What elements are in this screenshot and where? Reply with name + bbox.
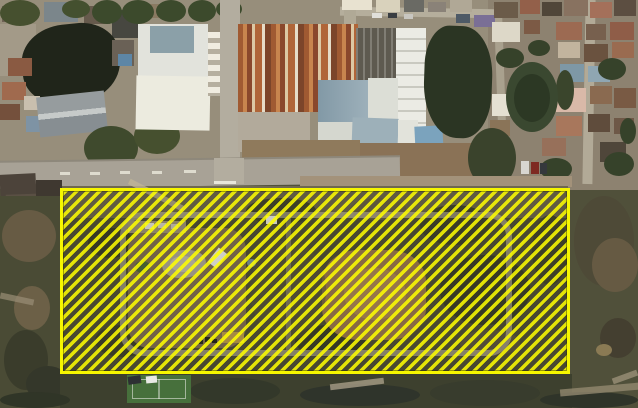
house-roof: [614, 88, 636, 108]
tree: [604, 152, 634, 176]
building-roof: [376, 0, 400, 12]
building-roof: [428, 2, 446, 12]
house-roof: [590, 86, 612, 104]
scrub-patch: [592, 238, 638, 292]
car: [372, 13, 382, 18]
tree: [122, 0, 154, 24]
house-roof: [520, 0, 540, 14]
house-roof: [564, 0, 588, 16]
house-roof: [588, 114, 610, 132]
scrub-patch: [540, 392, 638, 408]
road-marking: [152, 171, 162, 174]
road-marking: [120, 171, 130, 174]
tree: [156, 0, 186, 22]
house-roof: [542, 2, 562, 16]
building-roof: [404, 0, 424, 12]
road-marking: [60, 172, 70, 175]
pond: [422, 25, 494, 139]
white-warehouse: [136, 75, 211, 130]
house-roof: [586, 24, 606, 40]
house-roof: [494, 2, 518, 18]
house-roof: [524, 20, 540, 34]
tree: [620, 118, 636, 144]
tree: [598, 58, 626, 80]
house-roof: [610, 22, 634, 40]
blue-shed: [118, 54, 132, 66]
tree: [556, 70, 574, 110]
road-marking: [90, 172, 100, 175]
scrub-patch: [190, 378, 280, 404]
house-roof: [590, 2, 612, 18]
house-roof: [612, 42, 634, 58]
road-marking: [184, 170, 196, 173]
parked-car: [540, 163, 547, 174]
tree: [62, 0, 90, 18]
road-marking: [214, 181, 236, 184]
tree: [528, 40, 550, 56]
scrub-patch: [300, 384, 420, 406]
house-roof: [556, 22, 582, 40]
car: [404, 14, 413, 19]
house-roof: [614, 0, 636, 16]
satellite-map-view[interactable]: [0, 0, 638, 408]
parked-car: [521, 161, 529, 174]
house-roof: [542, 138, 566, 156]
house-roof: [2, 82, 26, 100]
parked-car: [531, 162, 539, 174]
house-roof: [0, 104, 20, 120]
vertical-road: [220, 0, 240, 170]
house-roof: [556, 116, 582, 136]
field-midline: [158, 379, 160, 399]
house-roof: [8, 58, 32, 76]
house-roof: [492, 22, 520, 42]
tree: [92, 0, 122, 24]
scrub-patch: [596, 344, 612, 356]
building-roof: [456, 14, 470, 23]
white-roof: [368, 78, 398, 122]
highlighted-region-overlay[interactable]: [60, 188, 570, 374]
house-roof: [558, 42, 580, 58]
building-roof: [450, 0, 472, 12]
building-roof: [342, 0, 372, 10]
map-viewport: [0, 0, 638, 408]
scrub-patch: [430, 380, 540, 406]
round-pond-center: [514, 74, 550, 122]
bluegray-roof-panel: [150, 26, 194, 53]
scrub-patch: [0, 392, 70, 408]
tree: [188, 0, 216, 22]
bluegray-roof: [318, 80, 368, 122]
tree: [0, 0, 40, 26]
car: [388, 13, 397, 18]
scrub-patch: [2, 210, 56, 262]
parked-van: [146, 376, 158, 384]
scrub-patch: [14, 286, 50, 330]
shed: [36, 180, 62, 196]
